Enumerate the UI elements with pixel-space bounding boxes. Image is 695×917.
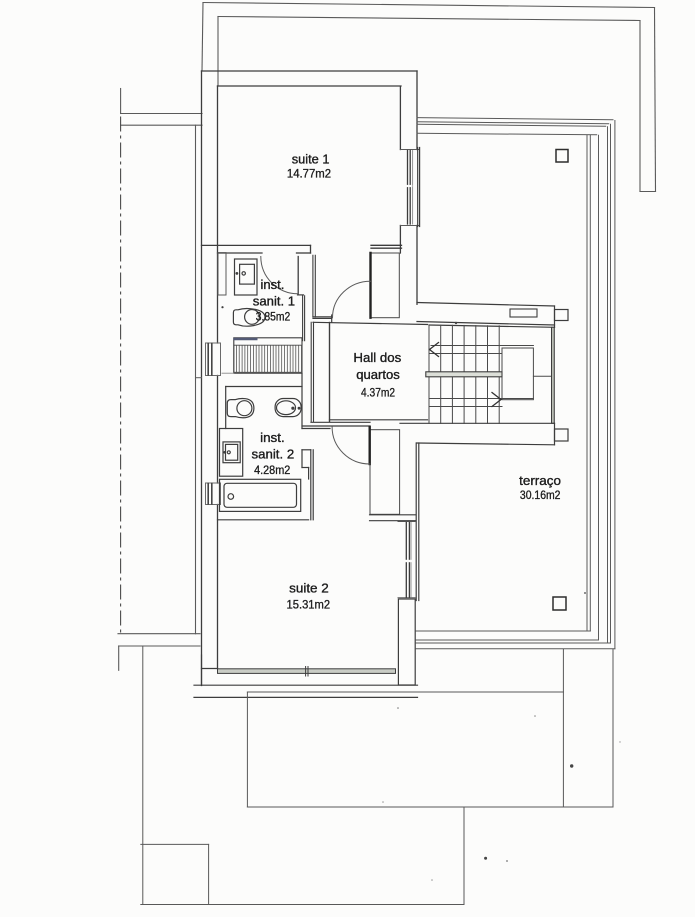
- svg-text:sanit. 1: sanit. 1: [253, 294, 295, 309]
- svg-text:Hall dos: Hall dos: [353, 350, 401, 365]
- svg-text:inst.: inst.: [261, 277, 285, 292]
- svg-text:15.31m2: 15.31m2: [287, 600, 331, 612]
- svg-text:4.37m2: 4.37m2: [361, 387, 395, 399]
- svg-text:14.77m2: 14.77m2: [287, 169, 331, 181]
- svg-text:suite 2: suite 2: [289, 580, 329, 595]
- svg-text:terraço: terraço: [519, 473, 561, 488]
- svg-text:3.85m2: 3.85m2: [256, 311, 290, 323]
- svg-text:suite 1: suite 1: [292, 152, 330, 167]
- svg-text:30.16m2: 30.16m2: [520, 490, 561, 502]
- svg-text:4.28m2: 4.28m2: [254, 465, 290, 477]
- svg-text:sanit. 2: sanit. 2: [252, 447, 295, 462]
- svg-text:quartos: quartos: [356, 367, 400, 382]
- svg-text:inst.: inst.: [260, 430, 285, 445]
